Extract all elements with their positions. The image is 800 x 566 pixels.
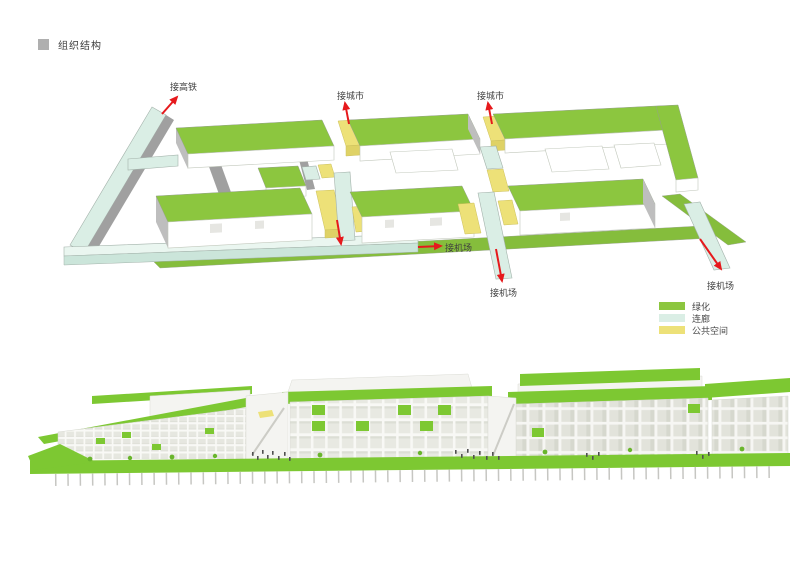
label-airport-center: 接机场	[490, 287, 517, 298]
presentation-page: 组织结构	[0, 0, 800, 566]
legend-swatch-greenery	[659, 302, 685, 310]
title-bullet-square	[38, 39, 49, 50]
legend-row-greenery: 绿化	[659, 300, 728, 312]
legend: 绿化 连廊 公共空间	[659, 300, 728, 336]
central-connector	[480, 146, 509, 192]
arrow-rail	[162, 97, 177, 114]
page-title: 组织结构	[38, 37, 102, 52]
label-city-left: 接城市	[337, 90, 364, 101]
label-city-right: 接城市	[477, 90, 504, 101]
public-space-south-center-right	[498, 200, 518, 225]
legend-swatch-public-space	[659, 326, 685, 334]
axonometric-diagram: 接高铁 接城市 接城市 接机场 接机场 接机场	[64, 81, 746, 298]
pilotis-columns	[55, 472, 770, 480]
arrow-airport-left	[418, 246, 441, 247]
legend-swatch-corridor	[659, 314, 685, 322]
elevation-rendering	[28, 368, 790, 480]
label-airport-left: 接机场	[445, 242, 472, 253]
legend-label-public-space: 公共空间	[692, 324, 728, 337]
page-title-label: 组织结构	[58, 37, 102, 52]
legend-row-public-space: 公共空间	[659, 324, 728, 336]
architecture-diagram-canvas: 接高铁 接城市 接城市 接机场 接机场 接机场	[0, 0, 800, 566]
label-airport-right: 接机场	[707, 280, 734, 291]
label-rail: 接高铁	[170, 81, 197, 92]
legend-row-corridor: 连廊	[659, 312, 728, 324]
